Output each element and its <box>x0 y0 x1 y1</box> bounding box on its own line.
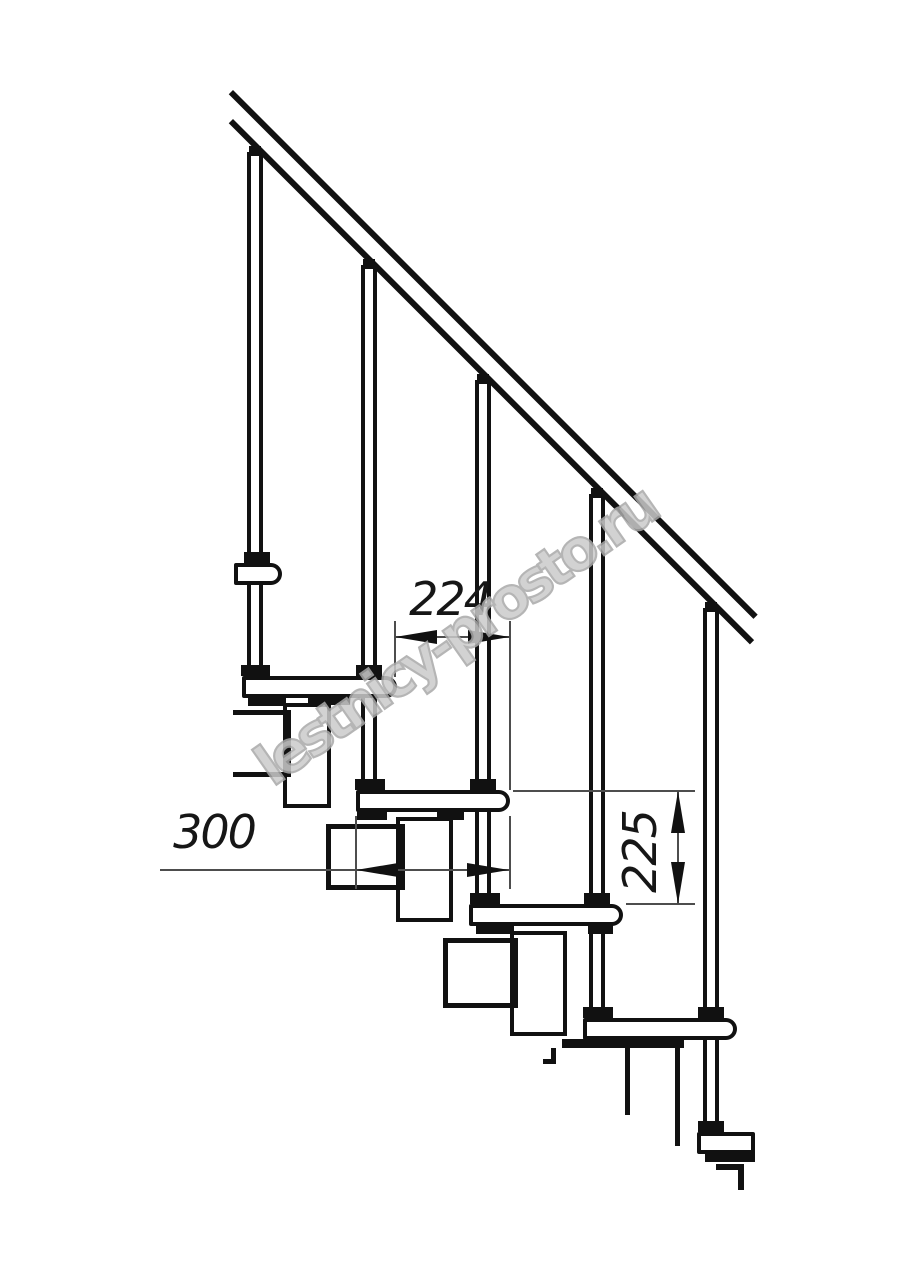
support-box <box>443 938 518 1008</box>
baluster-mount <box>470 893 500 904</box>
tread <box>356 790 510 812</box>
dim-line-300 <box>160 869 510 871</box>
baluster <box>247 152 263 676</box>
watermark-text: lestnicy-prosto.ru <box>192 439 720 836</box>
tread <box>697 1132 755 1154</box>
tread-fitting <box>562 1039 684 1048</box>
fragment-cut-line <box>625 1048 630 1115</box>
extension-line <box>509 621 511 790</box>
dimension-arrow <box>467 863 509 877</box>
fragment-cut-line <box>543 1059 553 1064</box>
baluster-mount <box>244 552 270 563</box>
tread-fitting <box>476 925 514 934</box>
baluster-mount <box>698 1121 724 1132</box>
baluster-mount <box>698 1007 724 1018</box>
tread-fitting <box>437 811 464 820</box>
tread-fitting <box>705 1152 755 1162</box>
dimension-label-225: 225 <box>617 806 663 898</box>
fragment-cut-line <box>716 1164 740 1170</box>
extension-line <box>509 816 511 889</box>
fragment-cut-line <box>675 1043 680 1146</box>
dimension-arrow <box>356 863 398 877</box>
handrail-upper-line <box>229 90 758 619</box>
baluster-mount <box>584 893 610 904</box>
extension-line <box>355 816 357 889</box>
technical-drawing: 224300225 lestnicy-prosto.ru <box>0 0 914 1280</box>
support-plate <box>510 931 567 1036</box>
tread <box>583 1018 737 1040</box>
tread-fitting <box>588 925 613 934</box>
baluster-mount <box>241 665 270 676</box>
support-box <box>326 824 405 890</box>
tread-fitting <box>248 697 286 706</box>
baluster-mount <box>470 779 496 790</box>
dimension-arrow <box>671 791 685 833</box>
dimension-arrow <box>671 862 685 904</box>
baluster-mount <box>355 779 385 790</box>
extension-line <box>513 790 695 792</box>
handrail-lower-line <box>229 119 754 644</box>
tread-fitting <box>357 811 387 820</box>
tread <box>469 904 623 926</box>
baluster <box>703 608 719 1132</box>
fragment-cut-line <box>738 1164 744 1190</box>
baluster-mount <box>583 1007 613 1018</box>
tread <box>234 563 282 585</box>
